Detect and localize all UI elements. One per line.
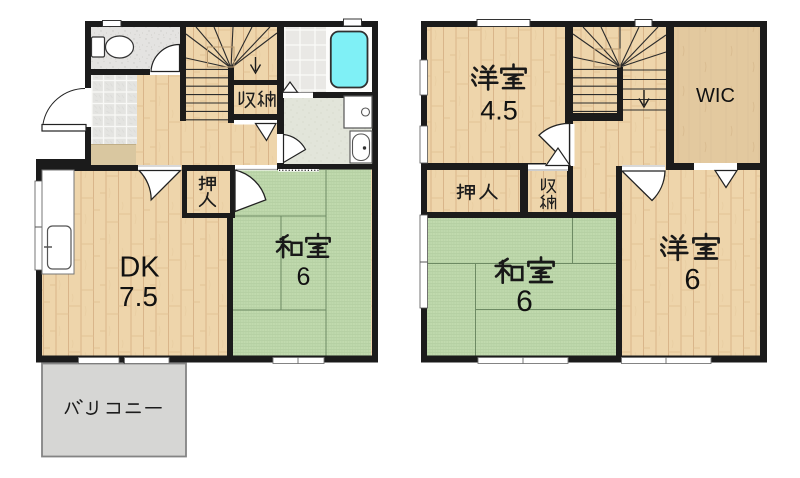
svg-text:DK: DK [119, 252, 160, 284]
svg-text:6: 6 [297, 263, 311, 291]
svg-text:WIC: WIC [696, 85, 735, 107]
svg-text:6: 6 [516, 285, 533, 318]
svg-text:7.5: 7.5 [119, 281, 158, 312]
svg-text:4.5: 4.5 [480, 96, 518, 126]
svg-text:6: 6 [684, 264, 700, 296]
